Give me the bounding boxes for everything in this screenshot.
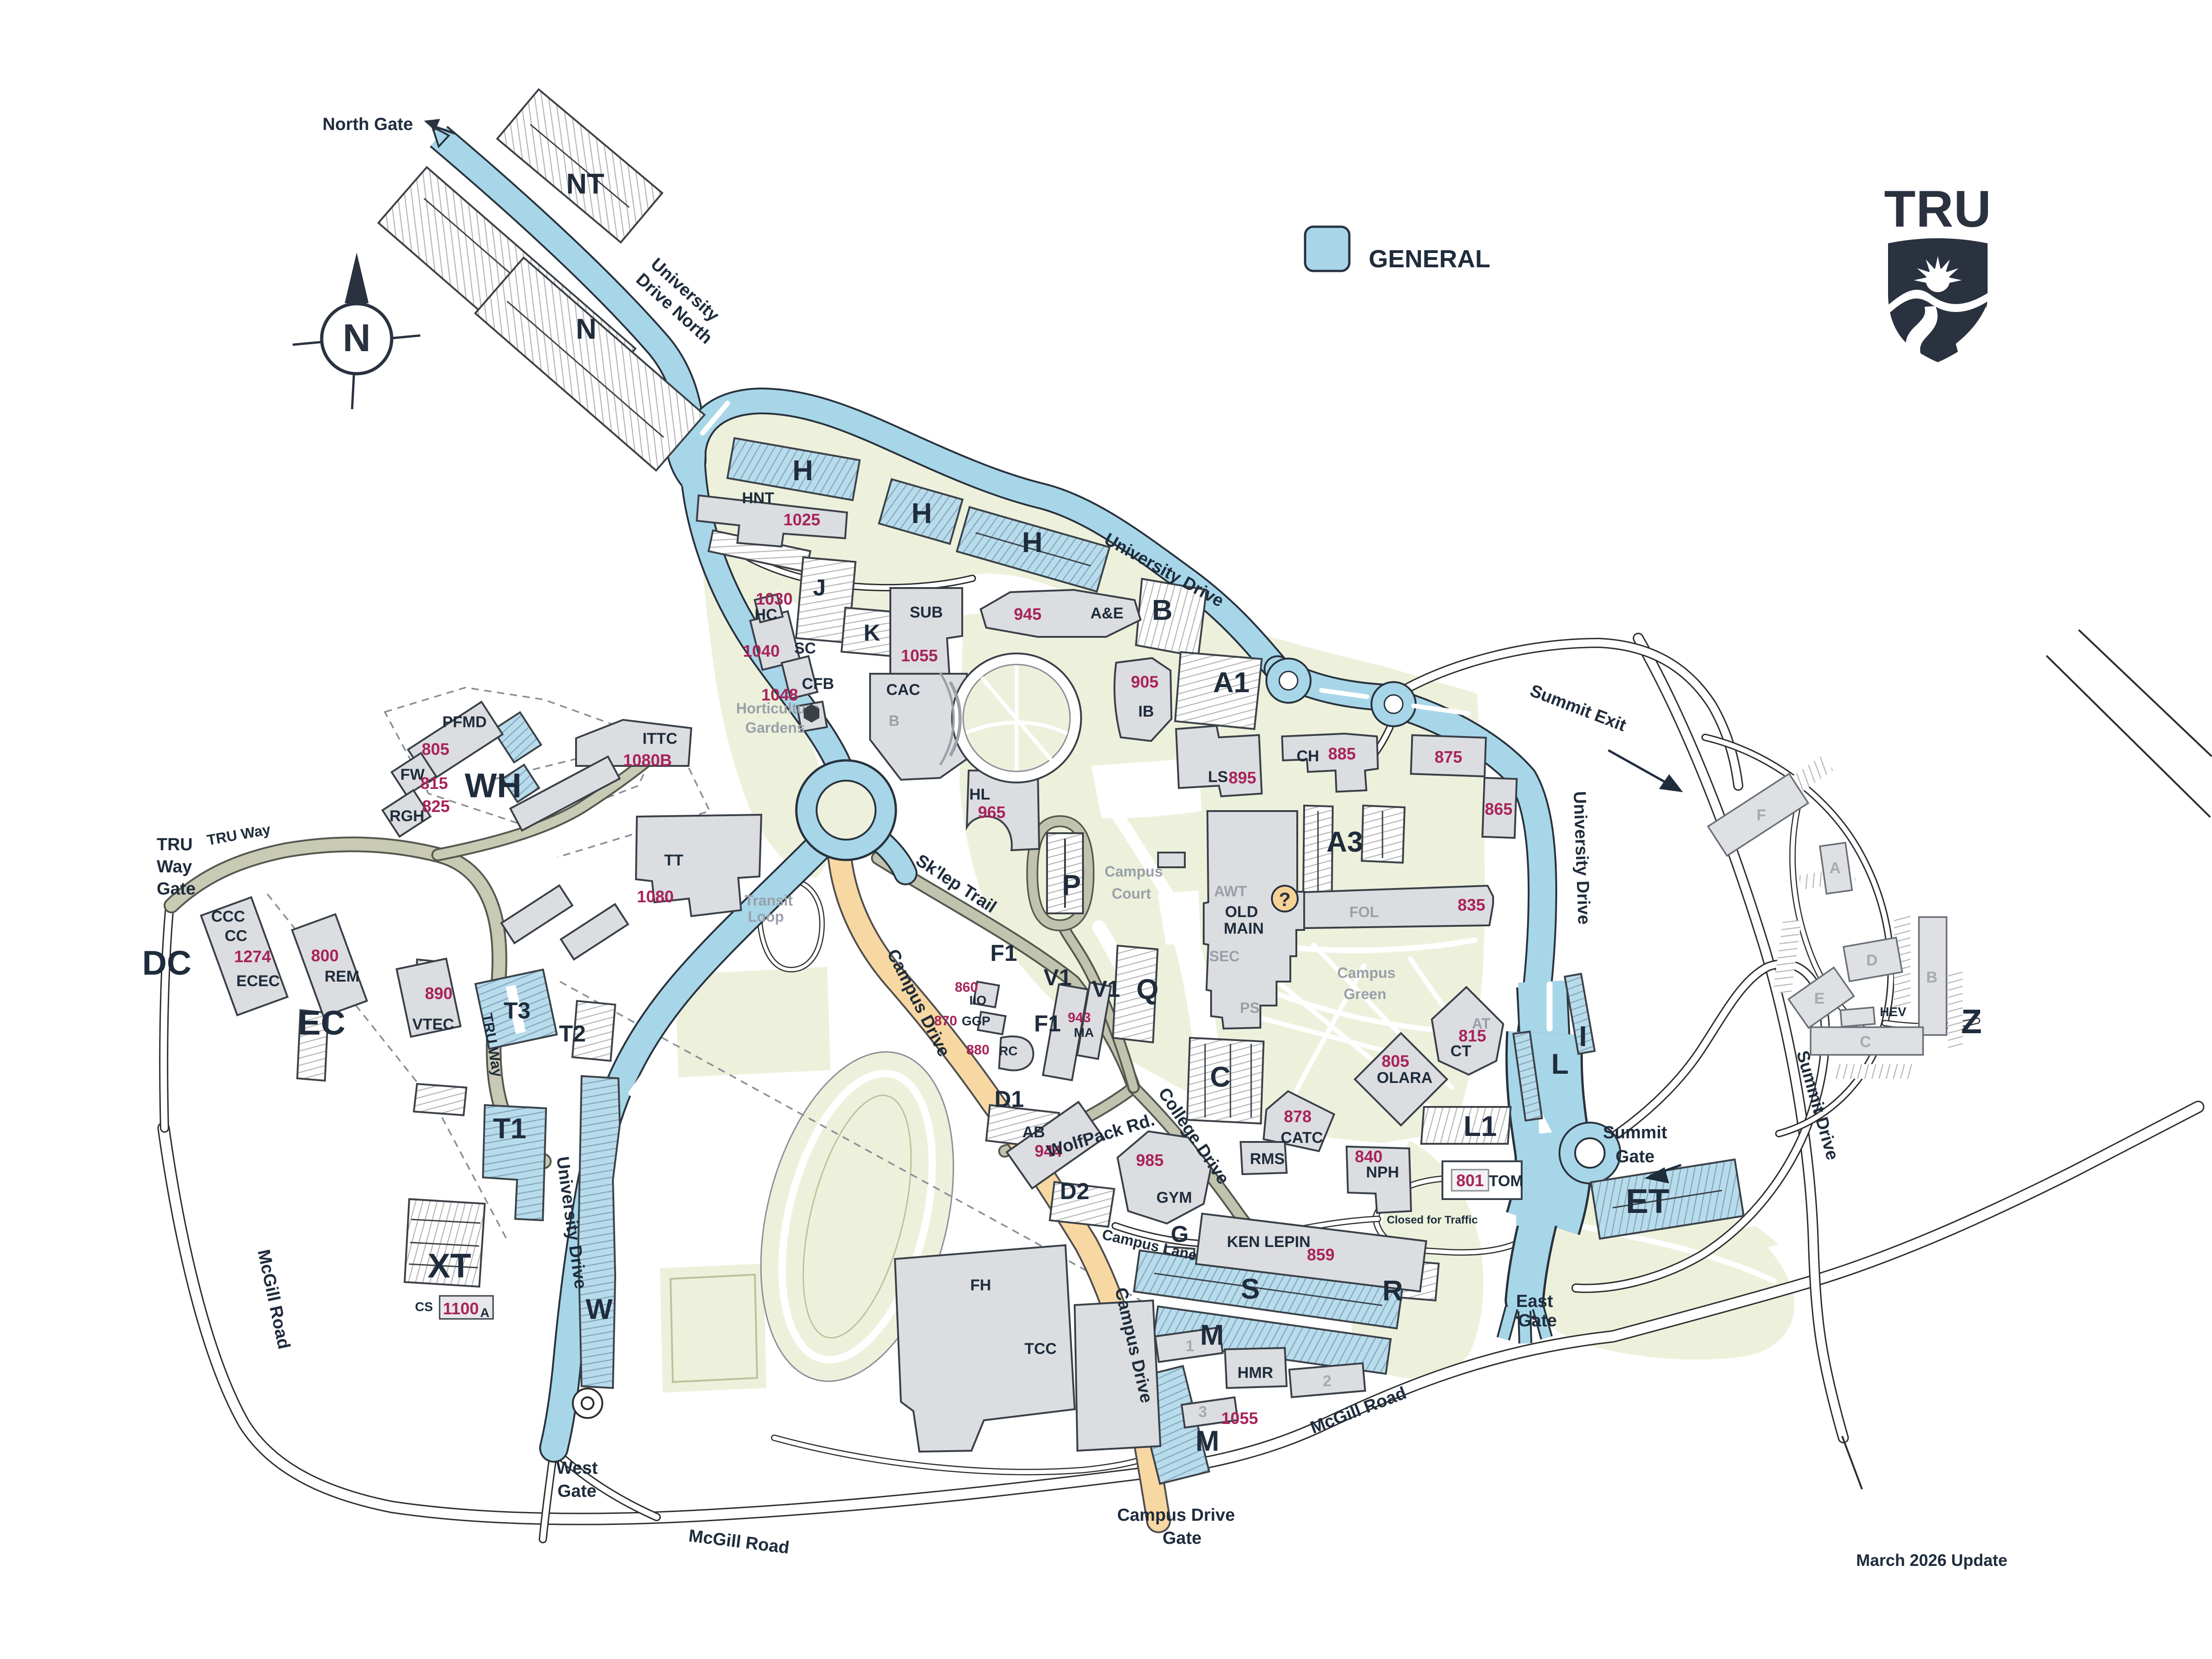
svg-text:B: B bbox=[888, 712, 899, 729]
svg-text:Way: Way bbox=[157, 857, 192, 877]
svg-text:GYM: GYM bbox=[1156, 1189, 1192, 1206]
svg-text:Gate: Gate bbox=[558, 1482, 596, 1501]
svg-text:Z: Z bbox=[1961, 1002, 1982, 1041]
svg-text:859: 859 bbox=[1307, 1245, 1335, 1264]
svg-text:W: W bbox=[586, 1294, 613, 1325]
svg-text:Closed for Traffic: Closed for Traffic bbox=[1387, 1214, 1477, 1226]
svg-text:NPH: NPH bbox=[1366, 1164, 1399, 1181]
svg-text:835: 835 bbox=[1458, 895, 1485, 914]
svg-text:C: C bbox=[1860, 1033, 1871, 1051]
svg-text:EC: EC bbox=[298, 1004, 346, 1042]
svg-text:J: J bbox=[813, 575, 826, 600]
svg-text:F: F bbox=[1757, 806, 1766, 824]
svg-text:Gate: Gate bbox=[1616, 1147, 1654, 1166]
svg-text:1055: 1055 bbox=[901, 646, 938, 665]
svg-text:1: 1 bbox=[1186, 1337, 1194, 1355]
svg-text:Campus: Campus bbox=[1337, 965, 1395, 981]
svg-text:943: 943 bbox=[1068, 1010, 1091, 1025]
svg-text:2: 2 bbox=[1323, 1372, 1332, 1390]
svg-text:M: M bbox=[1200, 1319, 1224, 1351]
svg-text:?: ? bbox=[1279, 888, 1291, 910]
svg-text:B: B bbox=[1926, 969, 1938, 986]
svg-text:B: B bbox=[1152, 594, 1173, 626]
svg-text:SUB: SUB bbox=[910, 604, 943, 621]
svg-text:M: M bbox=[1195, 1425, 1219, 1457]
svg-text:MA: MA bbox=[1074, 1025, 1094, 1040]
svg-text:1030: 1030 bbox=[756, 589, 793, 608]
svg-text:D1: D1 bbox=[994, 1086, 1024, 1112]
svg-text:A1: A1 bbox=[1213, 667, 1249, 699]
svg-text:Gardens: Gardens bbox=[745, 719, 805, 736]
svg-text:C: C bbox=[1210, 1061, 1231, 1093]
svg-text:PS: PS bbox=[1240, 1000, 1260, 1016]
svg-text:Summit: Summit bbox=[1603, 1123, 1667, 1142]
svg-text:TRU: TRU bbox=[157, 835, 193, 854]
svg-text:P: P bbox=[1062, 870, 1081, 901]
svg-text:AWT: AWT bbox=[1214, 883, 1247, 900]
svg-text:1274: 1274 bbox=[234, 947, 271, 966]
svg-text:FH: FH bbox=[970, 1277, 991, 1294]
svg-text:FOL: FOL bbox=[1349, 904, 1379, 920]
svg-text:I: I bbox=[1579, 1021, 1587, 1053]
svg-text:ITTC: ITTC bbox=[642, 730, 677, 747]
svg-text:1040: 1040 bbox=[743, 641, 780, 660]
svg-text:895: 895 bbox=[1229, 768, 1256, 787]
svg-text:H: H bbox=[1022, 527, 1043, 559]
svg-text:North Gate: North Gate bbox=[323, 115, 413, 134]
svg-text:HL: HL bbox=[969, 786, 990, 803]
svg-text:D: D bbox=[1866, 952, 1878, 969]
svg-text:H: H bbox=[793, 455, 813, 487]
svg-text:RC: RC bbox=[999, 1044, 1018, 1058]
svg-text:E: E bbox=[1814, 990, 1825, 1007]
svg-text:TOM: TOM bbox=[1489, 1172, 1524, 1190]
svg-text:SEC: SEC bbox=[1209, 948, 1240, 965]
svg-text:OLARA: OLARA bbox=[1377, 1069, 1433, 1087]
svg-text:Q: Q bbox=[1136, 974, 1159, 1006]
svg-text:840: 840 bbox=[1355, 1147, 1382, 1166]
svg-text:945: 945 bbox=[1014, 605, 1041, 624]
svg-text:GGP: GGP bbox=[962, 1014, 990, 1028]
svg-text:DC: DC bbox=[142, 944, 192, 982]
svg-text:WH: WH bbox=[465, 766, 521, 805]
svg-text:V1: V1 bbox=[1092, 976, 1120, 1002]
svg-text:L: L bbox=[1551, 1048, 1569, 1080]
svg-text:Gate: Gate bbox=[157, 879, 195, 899]
svg-text:875: 875 bbox=[1435, 747, 1462, 766]
svg-text:965: 965 bbox=[978, 803, 1006, 822]
svg-text:A&E: A&E bbox=[1090, 605, 1124, 622]
svg-text:878: 878 bbox=[1284, 1107, 1312, 1126]
svg-text:CCC: CCC bbox=[211, 908, 245, 925]
svg-text:3: 3 bbox=[1199, 1403, 1207, 1421]
svg-text:RGH: RGH bbox=[389, 807, 424, 825]
svg-text:HMR: HMR bbox=[1237, 1364, 1273, 1382]
svg-text:800: 800 bbox=[311, 946, 339, 965]
svg-text:A3: A3 bbox=[1326, 826, 1363, 858]
svg-text:N: N bbox=[576, 313, 597, 345]
svg-text:GENERAL: GENERAL bbox=[1369, 245, 1490, 273]
svg-text:XT: XT bbox=[428, 1247, 471, 1285]
svg-text:ECEC: ECEC bbox=[236, 972, 280, 990]
svg-text:MAIN: MAIN bbox=[1224, 920, 1264, 937]
svg-text:NT: NT bbox=[566, 168, 605, 200]
svg-text:905: 905 bbox=[1131, 672, 1159, 691]
svg-text:805: 805 bbox=[1382, 1052, 1409, 1071]
svg-text:Gate: Gate bbox=[1163, 1529, 1201, 1548]
svg-text:T2: T2 bbox=[559, 1021, 586, 1047]
svg-text:825: 825 bbox=[422, 797, 450, 816]
svg-text:D2: D2 bbox=[1060, 1178, 1089, 1204]
svg-text:HC: HC bbox=[754, 606, 777, 624]
svg-text:Loop: Loop bbox=[748, 908, 784, 925]
svg-text:CH: CH bbox=[1296, 747, 1319, 765]
svg-text:RMS: RMS bbox=[1250, 1150, 1285, 1168]
svg-text:CAC: CAC bbox=[886, 681, 920, 699]
svg-text:L1: L1 bbox=[1464, 1111, 1497, 1142]
svg-text:885: 885 bbox=[1328, 744, 1356, 763]
svg-text:Court: Court bbox=[1112, 885, 1151, 902]
svg-text:N: N bbox=[343, 316, 371, 359]
svg-text:PFMD: PFMD bbox=[442, 713, 487, 731]
svg-text:815: 815 bbox=[420, 774, 448, 793]
svg-text:TT: TT bbox=[664, 852, 683, 869]
svg-text:CATC: CATC bbox=[1281, 1129, 1323, 1147]
svg-text:ET: ET bbox=[1626, 1182, 1670, 1220]
svg-text:Transit: Transit bbox=[745, 892, 793, 909]
svg-text:K: K bbox=[864, 620, 880, 646]
svg-text:HNT: HNT bbox=[742, 489, 774, 507]
svg-text:890: 890 bbox=[425, 984, 453, 1003]
svg-text:IB: IB bbox=[1138, 703, 1154, 720]
svg-text:R: R bbox=[1382, 1275, 1403, 1307]
svg-text:REM: REM bbox=[324, 968, 359, 985]
svg-text:1080: 1080 bbox=[637, 887, 674, 906]
svg-text:Gate: Gate bbox=[1518, 1311, 1557, 1330]
svg-text:1100: 1100 bbox=[443, 1299, 479, 1318]
svg-text:T3: T3 bbox=[504, 998, 530, 1024]
svg-text:March 2026 Update: March 2026 Update bbox=[1856, 1551, 2007, 1570]
svg-text:TCC: TCC bbox=[1024, 1340, 1057, 1358]
svg-text:S: S bbox=[1241, 1273, 1259, 1305]
svg-text:1055: 1055 bbox=[1221, 1409, 1258, 1428]
svg-text:985: 985 bbox=[1136, 1151, 1164, 1170]
svg-text:CC: CC bbox=[224, 927, 247, 945]
svg-text:VTEC: VTEC bbox=[412, 1016, 454, 1033]
svg-text:TRU: TRU bbox=[1884, 180, 1991, 238]
svg-text:East: East bbox=[1516, 1292, 1553, 1311]
svg-text:F1: F1 bbox=[990, 940, 1017, 966]
svg-text:V1: V1 bbox=[1043, 965, 1071, 990]
svg-text:HEV: HEV bbox=[1880, 1005, 1906, 1019]
svg-text:AB: AB bbox=[1022, 1124, 1045, 1141]
svg-text:OLD: OLD bbox=[1225, 903, 1258, 921]
svg-text:CS: CS bbox=[415, 1300, 433, 1314]
svg-text:A: A bbox=[480, 1306, 489, 1320]
svg-text:Campus Drive: Campus Drive bbox=[1117, 1506, 1235, 1525]
svg-text:T1: T1 bbox=[493, 1113, 526, 1145]
svg-text:865: 865 bbox=[1485, 800, 1512, 818]
svg-text:801: 801 bbox=[1456, 1171, 1484, 1190]
svg-text:1025: 1025 bbox=[783, 510, 820, 529]
svg-text:CT: CT bbox=[1450, 1042, 1471, 1060]
svg-text:805: 805 bbox=[422, 740, 449, 759]
svg-text:West: West bbox=[556, 1459, 598, 1478]
svg-text:LS: LS bbox=[1208, 768, 1228, 786]
svg-text:Green: Green bbox=[1344, 986, 1386, 1002]
svg-text:880: 880 bbox=[966, 1042, 989, 1058]
svg-text:SC: SC bbox=[794, 640, 816, 657]
svg-text:Campus: Campus bbox=[1105, 863, 1163, 880]
svg-text:KEN LEPIN: KEN LEPIN bbox=[1227, 1233, 1310, 1251]
svg-text:IIO: IIO bbox=[969, 993, 986, 1007]
svg-text:A: A bbox=[1830, 859, 1841, 877]
svg-text:CFB: CFB bbox=[802, 675, 834, 693]
svg-text:1080B: 1080B bbox=[623, 751, 672, 770]
svg-text:F1: F1 bbox=[1034, 1011, 1061, 1036]
svg-text:H: H bbox=[912, 498, 932, 529]
